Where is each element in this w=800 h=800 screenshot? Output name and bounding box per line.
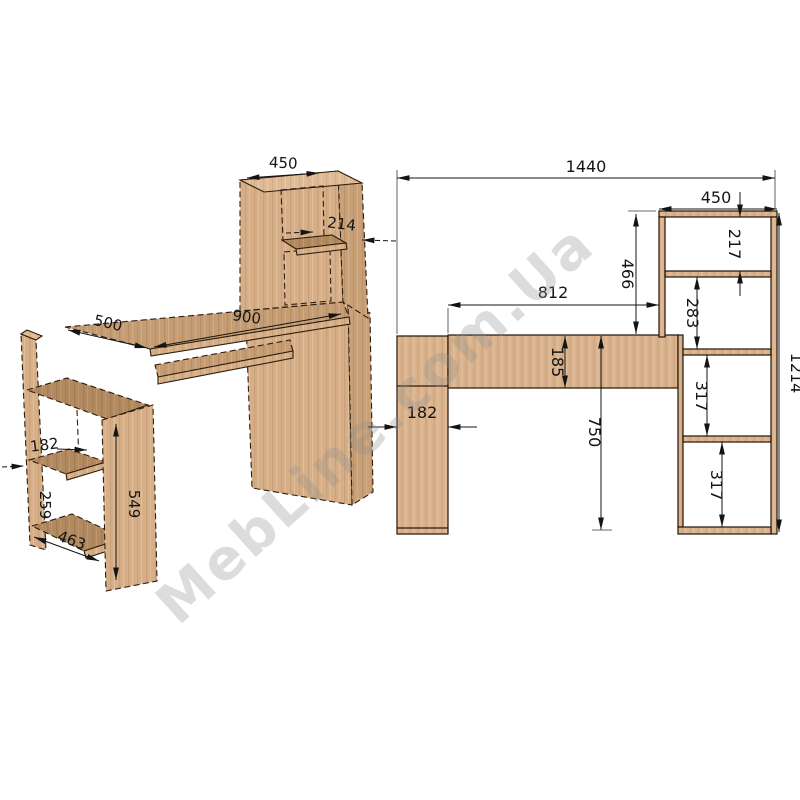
dim-front-lower-niche-b: 317	[707, 470, 726, 501]
elev-hutch-top-panel	[659, 211, 777, 217]
dim-iso-niche-height: 259	[36, 491, 54, 520]
dim-iso-niche-depth: 182	[29, 434, 60, 455]
dim-front-lower-niche-a: 317	[692, 381, 711, 412]
elev-hutch-left-wall-lower	[678, 335, 683, 527]
dim-iso-shelf-depth: 214	[326, 213, 357, 234]
elev-hutch-shelf-a	[665, 271, 771, 277]
elev-hutch-bottom-panel	[678, 527, 771, 534]
dim-iso-side-unit-height: 549	[125, 490, 143, 519]
technical-drawing-page: 450 214 500 900 182 259 549 463	[0, 0, 800, 800]
dim-front-desk-height: 750	[585, 417, 604, 448]
dim-front-apron-height: 185	[548, 347, 567, 378]
dim-front-hutch-width: 450	[701, 188, 732, 207]
watermark-text: MebLine.com.Ua	[144, 211, 607, 637]
dim-front-hutch-height: 466	[618, 259, 637, 290]
elev-hutch-left-wall-upper	[659, 217, 665, 337]
elev-hutch-shelf-b	[683, 349, 771, 355]
dim-front-overall-width: 1440	[566, 157, 607, 176]
dim-front-middle-niche: 283	[683, 298, 702, 329]
elev-hutch-right-wall	[771, 217, 777, 534]
dim-front-overall-height: 1214	[787, 353, 800, 394]
isometric-view: 450 214 500 900 182 259 549 463	[2, 153, 396, 591]
dim-front-top-niche: 217	[725, 229, 744, 260]
dim-iso-hutch-width: 450	[268, 153, 298, 172]
furniture-drawing: 450 214 500 900 182 259 549 463	[0, 0, 800, 800]
elev-hutch-shelf-c	[683, 436, 771, 442]
hutch-lower-niche	[284, 248, 331, 305]
